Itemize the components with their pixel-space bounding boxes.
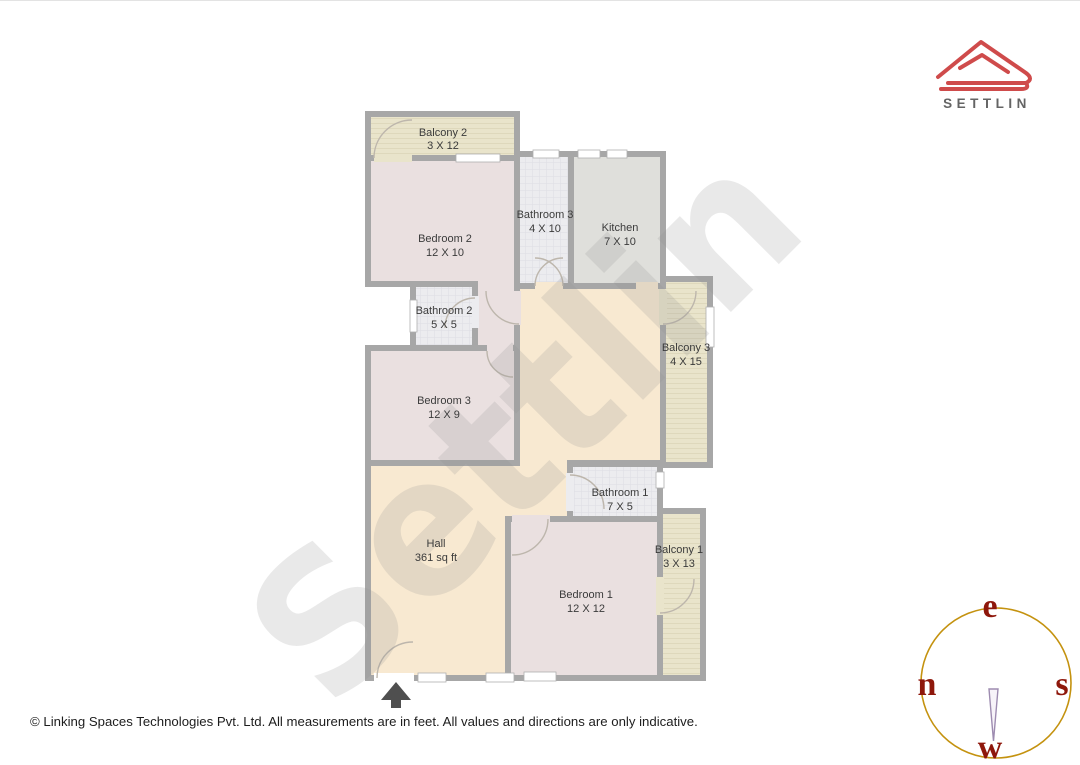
kitchen-window-1 — [578, 150, 600, 158]
floor-plan-page: Settlin Balcony 2 3 X 12 Bedroom 2 12 X … — [0, 0, 1080, 765]
balcony-1-label: Balcony 1 — [655, 544, 703, 556]
hall-window-2 — [486, 673, 514, 682]
floor-plan-svg: Settlin Balcony 2 3 X 12 Bedroom 2 12 X … — [0, 1, 1080, 765]
compass-letter-left: n — [918, 666, 937, 703]
bathroom-3-window — [533, 150, 559, 158]
balcony-3-label: Balcony 3 — [662, 342, 710, 354]
hall-dims: 361 sq ft — [415, 552, 457, 564]
balcony-1-dims: 3 X 13 — [663, 558, 695, 570]
kitchen-dims: 7 X 10 — [604, 236, 636, 248]
bathroom-1-label: Bathroom 1 — [592, 487, 649, 499]
bedroom-3-dims: 12 X 9 — [428, 409, 460, 421]
balcony-2-label: Balcony 2 — [419, 127, 467, 139]
balcony-1-door-opening — [656, 577, 664, 615]
balcony-2-dims: 3 X 12 — [427, 140, 459, 152]
settlin-logo: SETTLIN — [938, 42, 1031, 111]
compass-letter-top: e — [982, 588, 997, 625]
bathroom-3-dims: 4 X 10 — [529, 223, 561, 235]
compass: e n s w — [918, 588, 1071, 765]
kitchen-window-2 — [607, 150, 627, 158]
bedroom-1-dims: 12 X 12 — [567, 603, 605, 615]
bedroom-2-label: Bedroom 2 — [418, 233, 472, 245]
hall-label: Hall — [427, 538, 446, 550]
compass-letter-bottom: w — [978, 729, 1003, 765]
room-balcony-1 — [660, 511, 703, 678]
bedroom-3-label: Bedroom 3 — [417, 395, 471, 407]
room-bedroom-2 — [368, 158, 517, 284]
bathroom-1-dims: 7 X 5 — [607, 501, 633, 513]
balcony-2-door-opening — [374, 154, 412, 162]
logo-roof-outer-icon — [938, 42, 1030, 83]
bathroom-3-label: Bathroom 3 — [517, 209, 574, 221]
copyright-text: © Linking Spaces Technologies Pvt. Ltd. … — [30, 714, 698, 729]
balcony-3-dims: 4 X 15 — [670, 356, 702, 368]
bedroom-1-label: Bedroom 1 — [559, 589, 613, 601]
bathroom-2-label: Bathroom 2 — [416, 305, 473, 317]
bedroom-2-dims: 12 X 10 — [426, 247, 464, 259]
bathroom-2-dims: 5 X 5 — [431, 319, 457, 331]
compass-letter-right: s — [1055, 666, 1068, 703]
bedroom-1-window — [524, 672, 556, 681]
kitchen-label: Kitchen — [602, 222, 639, 234]
balcony-2-window — [456, 154, 500, 162]
bathroom-1-window — [656, 472, 664, 488]
logo-brand-text: SETTLIN — [943, 96, 1031, 111]
